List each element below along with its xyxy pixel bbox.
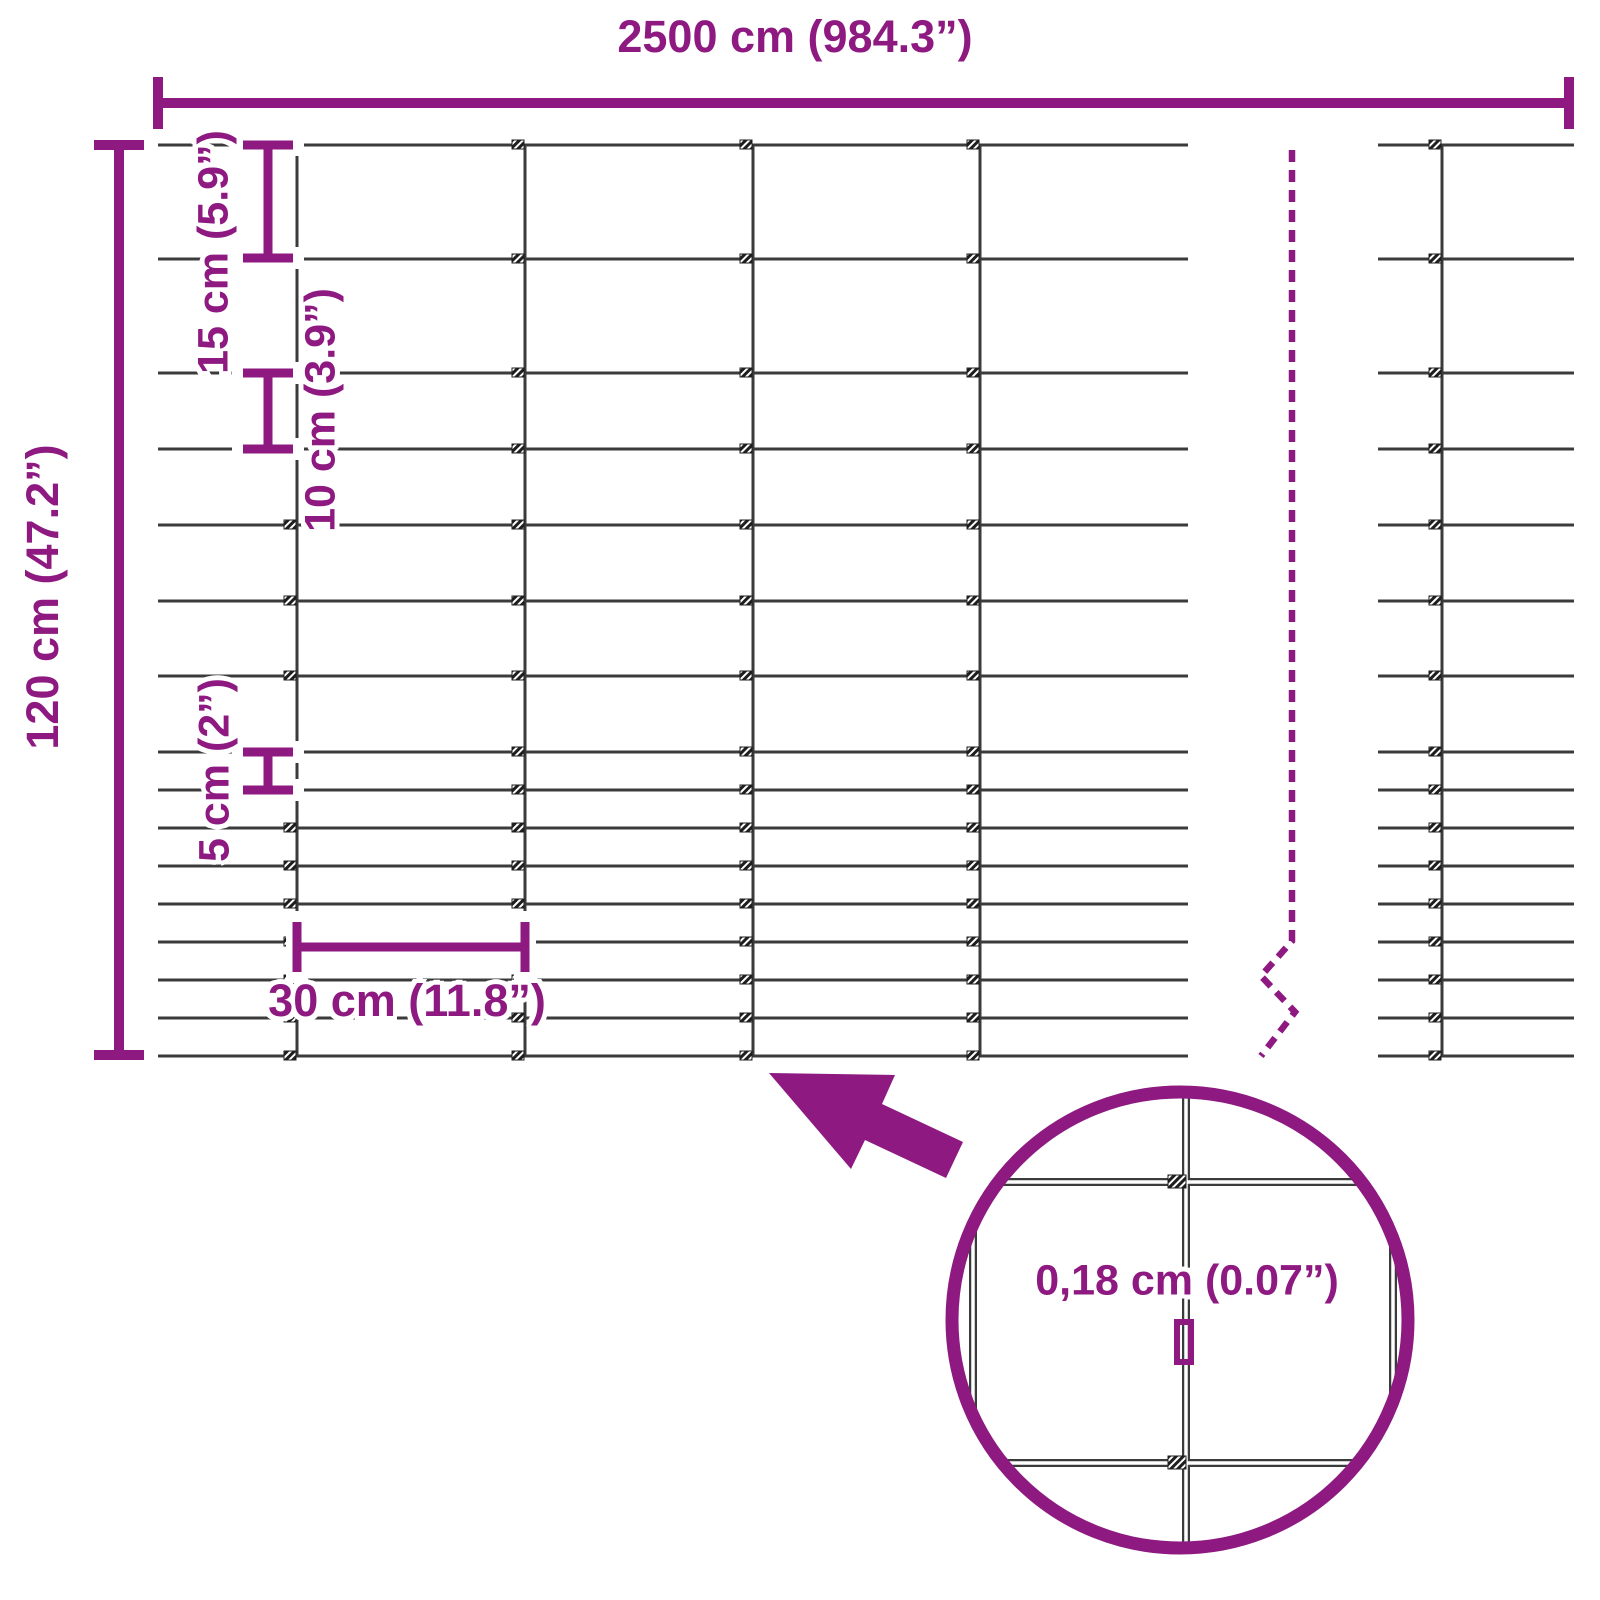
- wire-knot: [740, 444, 752, 453]
- wire-knot: [1429, 368, 1441, 377]
- wire-knot-large: [1168, 1175, 1186, 1188]
- total-length-label: 2500 cm (984.3”): [617, 11, 972, 63]
- wire-knot: [512, 1051, 524, 1060]
- wire-knot: [1429, 520, 1441, 529]
- wire-knot: [512, 254, 524, 263]
- wire-knot: [1429, 899, 1441, 908]
- wire-knot: [284, 520, 296, 529]
- wire-knot: [740, 861, 752, 870]
- wire-knot: [512, 368, 524, 377]
- magnifier-detail: [944, 1082, 1420, 1558]
- wire-knot: [512, 671, 524, 680]
- wire-knot: [967, 596, 979, 605]
- top-dimension-line: [158, 77, 1569, 129]
- gap-15cm-label: 15 cm (5.9”): [190, 130, 239, 374]
- bracket-10cm: [243, 373, 293, 449]
- wire-thickness-label: 0,18 cm (0.07”): [1035, 1257, 1339, 1306]
- wire-knot: [1429, 861, 1441, 870]
- wire-knot: [1429, 975, 1441, 984]
- wire-knot: [512, 520, 524, 529]
- wire-knot: [740, 785, 752, 794]
- wire-knot: [512, 747, 524, 756]
- wire-knot: [1429, 1051, 1441, 1060]
- break-dashed-line: [1261, 150, 1295, 1056]
- wire-knot: [512, 140, 524, 149]
- wire-knot: [512, 823, 524, 832]
- wire-knot: [967, 1013, 979, 1022]
- wire-knot: [1429, 444, 1441, 453]
- wire-knot: [967, 937, 979, 946]
- wire-knot: [967, 899, 979, 908]
- wire-knot: [284, 671, 296, 680]
- wire-knot: [1429, 1013, 1441, 1022]
- wire-knot: [967, 671, 979, 680]
- wire-knot: [1429, 140, 1441, 149]
- wire-knot: [967, 785, 979, 794]
- wire-knot: [512, 785, 524, 794]
- wire-knot: [967, 823, 979, 832]
- wire-knot: [284, 1051, 296, 1060]
- wire-knot: [740, 140, 752, 149]
- total-height-label: 120 cm (47.2”): [17, 444, 69, 749]
- wire-knot: [740, 596, 752, 605]
- wire-knot-large: [1168, 1456, 1186, 1469]
- wire-knot: [1429, 937, 1441, 946]
- wire-knot: [967, 975, 979, 984]
- wire-knot: [740, 747, 752, 756]
- wire-knot: [1429, 823, 1441, 832]
- wire-knot: [740, 254, 752, 263]
- gap-5cm-label: 5 cm (2”): [191, 678, 240, 862]
- wire-knot: [967, 747, 979, 756]
- zoom-arrow-icon: [769, 1073, 963, 1178]
- left-dimension-line: [94, 140, 144, 1060]
- gap-10cm-label: 10 cm (3.9”): [297, 288, 346, 532]
- wire-knot: [740, 1013, 752, 1022]
- wire-knot: [284, 596, 296, 605]
- wire-knot: [740, 671, 752, 680]
- wire-knot: [967, 254, 979, 263]
- wire-knot: [1429, 254, 1441, 263]
- wire-knot: [284, 899, 296, 908]
- wire-knot: [740, 899, 752, 908]
- wire-knot: [512, 861, 524, 870]
- bracket-15cm: [243, 145, 293, 258]
- wire-knot: [967, 444, 979, 453]
- wire-knot: [740, 975, 752, 984]
- wire-knot: [284, 823, 296, 832]
- wire-knot: [740, 1051, 752, 1060]
- wire-knot: [967, 140, 979, 149]
- bracket-30cm: [297, 922, 525, 972]
- wire-knot: [1429, 785, 1441, 794]
- fence-dimension-diagram: 2500 cm (984.3”) 120 cm (47.2”) 15 cm (5…: [0, 0, 1600, 1600]
- wire-knot: [967, 861, 979, 870]
- diagram-canvas: [0, 0, 1600, 1600]
- wire-knot: [512, 899, 524, 908]
- wire-knot: [512, 596, 524, 605]
- wire-knot: [1429, 596, 1441, 605]
- wire-knot: [284, 861, 296, 870]
- wire-knot: [740, 823, 752, 832]
- wire-knot: [967, 1051, 979, 1060]
- wire-knot: [512, 444, 524, 453]
- wire-knot: [967, 368, 979, 377]
- bracket-5cm: [243, 752, 293, 790]
- fence-mesh: [158, 140, 1574, 1060]
- wire-knot: [1429, 671, 1441, 680]
- wire-knot: [967, 520, 979, 529]
- mesh-width-label: 30 cm (11.8”): [268, 975, 546, 1027]
- wire-knot: [740, 937, 752, 946]
- wire-knot: [1429, 747, 1441, 756]
- wire-knot: [740, 520, 752, 529]
- wire-knot: [740, 368, 752, 377]
